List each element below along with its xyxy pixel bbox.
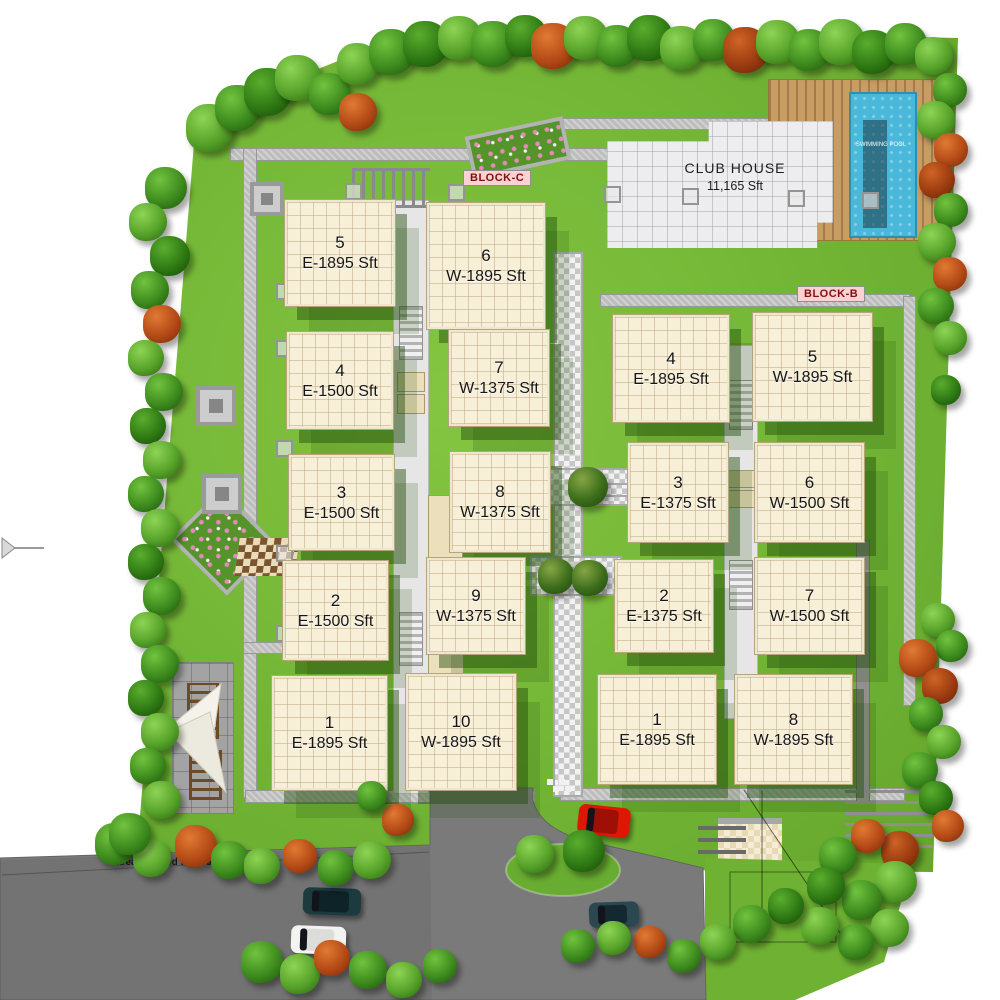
unit-number: 5 bbox=[335, 233, 344, 253]
unit-area: W-1895 Sft bbox=[446, 268, 526, 286]
tree-icon bbox=[244, 848, 280, 884]
unit-block-b-8: 8W-1895 Sft bbox=[735, 675, 852, 784]
tree-icon bbox=[838, 924, 874, 960]
block-b-label: BLOCK-B bbox=[797, 286, 865, 302]
tree-icon bbox=[349, 951, 387, 989]
unit-block-b-4: 4E-1895 Sft bbox=[613, 315, 729, 422]
tree-icon bbox=[130, 612, 166, 648]
unit-number: 8 bbox=[495, 482, 504, 502]
tree-icon bbox=[561, 929, 595, 963]
unit-area: W-1895 Sft bbox=[421, 734, 501, 752]
unit-block-b-5: 5W-1895 Sft bbox=[753, 313, 872, 421]
unit-area: E-1500 Sft bbox=[298, 613, 374, 631]
unit-block-b-7: 7W-1500 Sft bbox=[755, 558, 864, 654]
tree-icon bbox=[339, 93, 377, 131]
unit-number: 3 bbox=[337, 483, 346, 503]
unit-block-c-4: 4E-1500 Sft bbox=[287, 332, 393, 429]
tree-icon bbox=[568, 467, 608, 507]
tree-icon bbox=[241, 941, 283, 983]
unit-block-c-10: 10W-1895 Sft bbox=[406, 674, 516, 790]
site-plan: CLUB HOUSE 11,165 Sft SWIMMING POOL bbox=[0, 0, 1000, 1000]
unit-area: W-1375 Sft bbox=[436, 608, 516, 626]
tree-icon bbox=[357, 781, 387, 811]
tree-icon bbox=[807, 867, 845, 905]
tree-icon bbox=[141, 645, 179, 683]
unit-area: W-1895 Sft bbox=[773, 369, 853, 387]
unit-area: W-1375 Sft bbox=[459, 380, 539, 398]
tree-icon bbox=[141, 713, 179, 751]
unit-block-b-2: 2E-1375 Sft bbox=[615, 560, 713, 652]
tree-icon bbox=[538, 558, 574, 594]
tree-icon bbox=[143, 441, 181, 479]
unit-number: 8 bbox=[789, 710, 798, 730]
block-c-label: BLOCK-C bbox=[463, 170, 531, 186]
unit-number: 1 bbox=[325, 713, 334, 733]
unit-number: 4 bbox=[666, 349, 675, 369]
tree-icon bbox=[927, 725, 961, 759]
unit-area: W-1895 Sft bbox=[754, 732, 834, 750]
tree-icon bbox=[128, 476, 164, 512]
tree-icon bbox=[563, 830, 605, 872]
tree-icon bbox=[931, 375, 961, 405]
tree-icon bbox=[768, 888, 804, 924]
tree-icon bbox=[423, 949, 457, 983]
unit-number: 10 bbox=[452, 712, 471, 732]
tree-icon bbox=[128, 340, 164, 376]
unit-number: 1 bbox=[652, 710, 661, 730]
unit-block-c-2: 2E-1500 Sft bbox=[283, 561, 388, 660]
unit-number: 9 bbox=[471, 586, 480, 606]
unit-number: 3 bbox=[673, 473, 682, 493]
unit-area: E-1375 Sft bbox=[640, 495, 716, 513]
tree-icon bbox=[143, 305, 181, 343]
tree-icon bbox=[145, 373, 183, 411]
unit-block-b-3: 3E-1375 Sft bbox=[628, 443, 728, 542]
tree-icon bbox=[733, 905, 771, 943]
tree-icon bbox=[933, 321, 967, 355]
unit-area: E-1375 Sft bbox=[626, 608, 702, 626]
unit-block-c-6: 6W-1895 Sft bbox=[427, 203, 545, 329]
unit-number: 4 bbox=[335, 361, 344, 381]
tree-icon bbox=[932, 810, 964, 842]
tree-icon bbox=[871, 909, 909, 947]
unit-area: W-1500 Sft bbox=[770, 608, 850, 626]
unit-number: 6 bbox=[805, 473, 814, 493]
tree-icon bbox=[130, 748, 166, 784]
unit-number: 7 bbox=[494, 358, 503, 378]
tree-icon bbox=[516, 835, 554, 873]
boundary-marker-icon bbox=[0, 530, 50, 570]
unit-block-c-8: 8W-1375 Sft bbox=[450, 452, 550, 552]
tree-icon bbox=[283, 839, 317, 873]
unit-number: 5 bbox=[808, 347, 817, 367]
tree-icon bbox=[572, 560, 608, 596]
unit-area: E-1500 Sft bbox=[302, 383, 378, 401]
tree-icon bbox=[918, 223, 956, 261]
unit-block-c-5: 5E-1895 Sft bbox=[285, 200, 395, 306]
unit-block-b-6: 6W-1500 Sft bbox=[755, 443, 864, 542]
tree-icon bbox=[634, 926, 666, 958]
tree-icon bbox=[597, 921, 631, 955]
unit-number: 7 bbox=[805, 586, 814, 606]
tree-icon bbox=[353, 841, 391, 879]
tree-icon bbox=[936, 630, 968, 662]
unit-number: 2 bbox=[659, 586, 668, 606]
tree-icon bbox=[851, 819, 885, 853]
unit-block-c-9: 9W-1375 Sft bbox=[427, 558, 525, 654]
unit-number: 6 bbox=[481, 246, 490, 266]
unit-area: E-1895 Sft bbox=[292, 735, 368, 753]
tree-icon bbox=[933, 257, 967, 291]
car bbox=[303, 887, 362, 916]
tree-icon bbox=[382, 804, 414, 836]
car-windshield bbox=[300, 928, 308, 950]
tree-icon bbox=[915, 37, 953, 75]
unit-area: W-1500 Sft bbox=[770, 495, 850, 513]
tree-icon bbox=[128, 680, 164, 716]
tree-icon bbox=[918, 288, 954, 324]
tree-icon bbox=[130, 408, 166, 444]
tree-icon bbox=[128, 544, 164, 580]
tree-icon bbox=[318, 850, 354, 886]
unit-block-c-1: 1E-1895 Sft bbox=[272, 676, 387, 790]
unit-block-b-1: 1E-1895 Sft bbox=[598, 675, 716, 784]
car-roof bbox=[315, 890, 350, 912]
unit-area: E-1500 Sft bbox=[304, 505, 380, 523]
unit-area: E-1895 Sft bbox=[302, 255, 378, 273]
tree-icon bbox=[150, 236, 190, 276]
tree-icon bbox=[667, 939, 701, 973]
tree-icon bbox=[143, 577, 181, 615]
car-windshield bbox=[312, 890, 320, 911]
unit-block-c-7: 7W-1375 Sft bbox=[449, 330, 549, 426]
tree-icon bbox=[386, 962, 422, 998]
unit-area: E-1895 Sft bbox=[619, 732, 695, 750]
tree-icon bbox=[801, 907, 839, 945]
unit-area: W-1375 Sft bbox=[460, 504, 540, 522]
tree-icon bbox=[700, 924, 736, 960]
unit-number: 2 bbox=[331, 591, 340, 611]
tree-icon bbox=[934, 193, 968, 227]
tree-icon bbox=[129, 203, 167, 241]
tree-icon bbox=[141, 509, 179, 547]
unit-area: E-1895 Sft bbox=[633, 371, 709, 389]
unit-block-c-3: 3E-1500 Sft bbox=[289, 455, 394, 550]
tree-icon bbox=[131, 271, 169, 309]
tree-icon bbox=[109, 813, 151, 855]
tree-icon bbox=[314, 940, 350, 976]
tree-icon bbox=[143, 781, 181, 819]
